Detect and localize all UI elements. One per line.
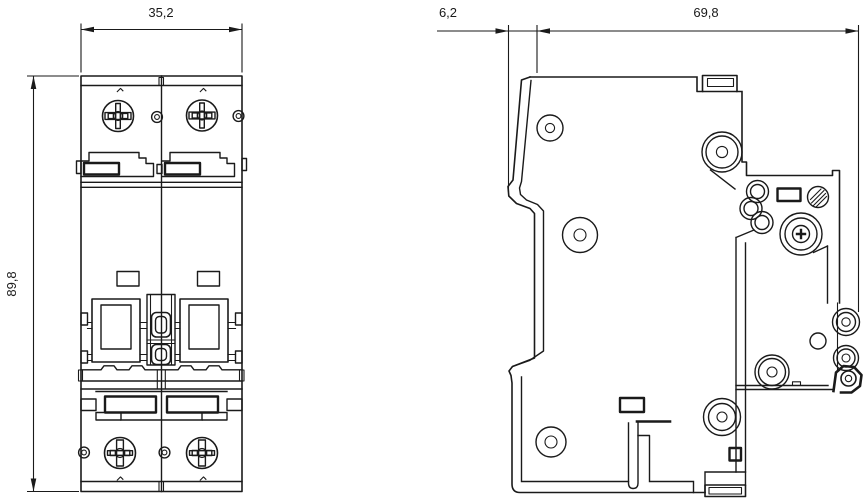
arrowhead xyxy=(846,28,859,33)
rivet-icon xyxy=(704,399,741,436)
bottom-din-tab xyxy=(705,485,746,497)
rivet-icon xyxy=(563,218,598,253)
tick-mark xyxy=(117,88,123,91)
front-face-profile xyxy=(508,77,705,493)
extension-line xyxy=(27,76,79,492)
pin-hole xyxy=(810,333,826,349)
arrowhead xyxy=(31,76,37,89)
tick-mark xyxy=(117,477,123,480)
screw-head-icon xyxy=(780,213,822,255)
dim-side-offset: 6,2 xyxy=(437,5,550,192)
dimension-label: 69,8 xyxy=(693,5,718,20)
tick-mark xyxy=(200,477,206,480)
extension-line xyxy=(81,24,242,73)
phillips-screw-icon xyxy=(103,101,134,132)
dim-front-height: 89,8 xyxy=(4,76,79,492)
hatched-screw-icon xyxy=(808,187,829,208)
arrowhead xyxy=(31,479,37,492)
arrowhead xyxy=(496,28,509,33)
phillips-screw-icon xyxy=(105,438,136,469)
terminal-screws-top xyxy=(103,100,244,132)
rivet-icon xyxy=(702,132,742,172)
phillips-screw-icon xyxy=(187,100,218,131)
terminal-screws-bottom xyxy=(79,438,218,469)
side-view xyxy=(508,76,862,497)
contact-window xyxy=(778,189,801,202)
rivet-icon xyxy=(536,427,566,457)
rivet-icon xyxy=(537,115,563,141)
front-body-outline xyxy=(81,76,242,492)
dimension-label: 6,2 xyxy=(439,5,457,20)
coding-slot xyxy=(620,398,670,489)
tick-mark xyxy=(200,88,206,91)
clip-latch-block xyxy=(730,448,742,461)
rivet-icon xyxy=(755,355,789,389)
arrowhead xyxy=(229,27,242,33)
dimension-label: 35,2 xyxy=(148,5,173,20)
rivet-bosses xyxy=(536,115,789,457)
dimension-label: 89,8 xyxy=(4,271,19,296)
technical-drawing-canvas: 35,2 89,8 6,2 69,8 xyxy=(0,0,867,501)
din-knob xyxy=(833,309,860,336)
label-windows xyxy=(117,272,220,287)
latch-detail-cluster xyxy=(740,181,829,350)
terminal-screw-icon xyxy=(152,112,163,123)
label-window xyxy=(117,272,139,287)
arrowhead xyxy=(81,27,94,33)
phillips-screw-icon xyxy=(187,438,218,469)
dim-side-depth: 69,8 xyxy=(537,5,859,312)
dim-front-width: 35,2 xyxy=(81,5,242,73)
front-view xyxy=(77,76,247,492)
terminal-screw-icon xyxy=(159,447,170,458)
din-rail-clip xyxy=(730,309,862,461)
label-window xyxy=(198,272,220,287)
